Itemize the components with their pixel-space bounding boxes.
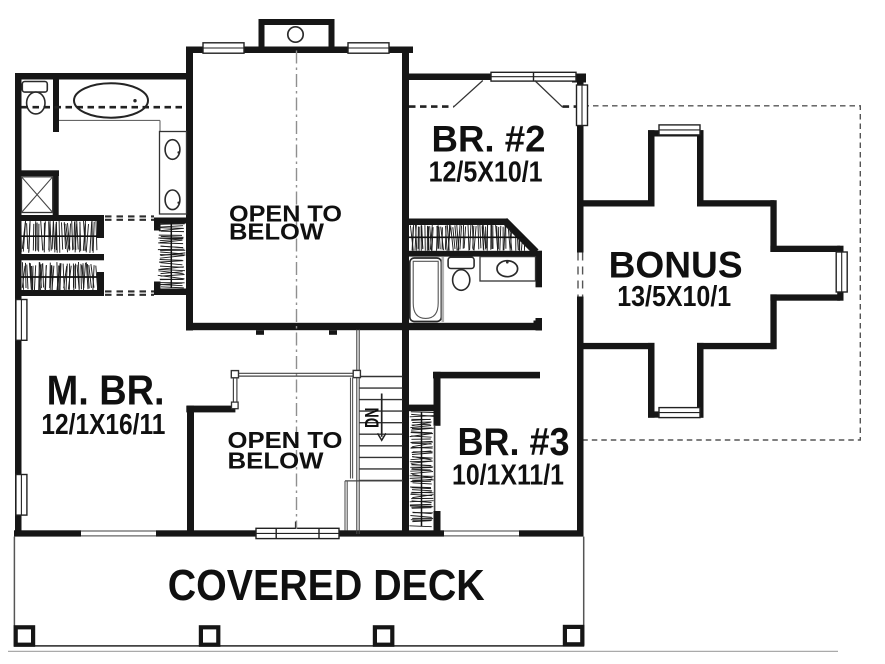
- svg-text:BR. #2: BR. #2: [432, 118, 546, 160]
- svg-text:13/5X10/1: 13/5X10/1: [617, 281, 731, 313]
- svg-text:BELOW: BELOW: [229, 219, 324, 245]
- svg-text:M. BR.: M. BR.: [47, 366, 165, 413]
- svg-text:12/1X16/11: 12/1X16/11: [41, 409, 165, 441]
- svg-text:BR. #3: BR. #3: [458, 421, 570, 464]
- svg-text:BONUS: BONUS: [609, 243, 743, 285]
- svg-text:DN: DN: [363, 408, 384, 429]
- svg-text:12/5X10/1: 12/5X10/1: [429, 157, 543, 189]
- svg-text:BELOW: BELOW: [228, 448, 324, 474]
- svg-text:10/1X11/1: 10/1X11/1: [452, 460, 564, 492]
- svg-text:COVERED DECK: COVERED DECK: [168, 561, 485, 610]
